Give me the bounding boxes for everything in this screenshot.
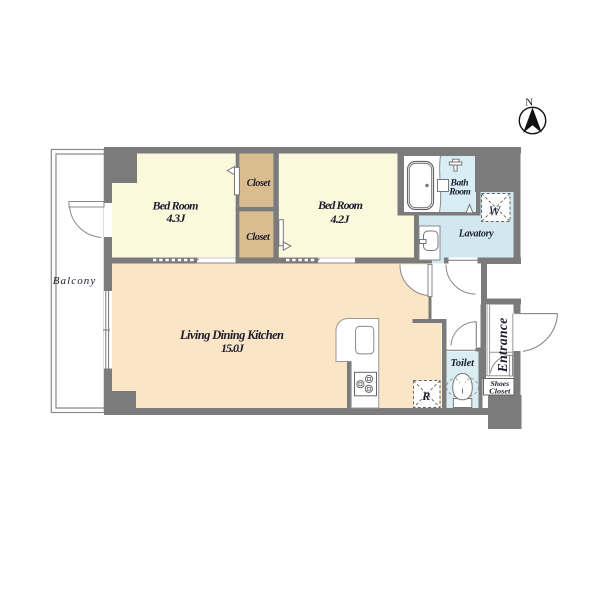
- svg-text:Closet: Closet: [247, 178, 272, 189]
- svg-text:R: R: [421, 389, 430, 403]
- svg-text:W: W: [489, 204, 502, 219]
- svg-text:Closet: Closet: [246, 232, 271, 243]
- svg-text:Room: Room: [448, 188, 471, 198]
- svg-text:4.3J: 4.3J: [166, 211, 187, 225]
- svg-text:Living Dining Kitchen: Living Dining Kitchen: [179, 328, 284, 342]
- svg-text:Lavatory: Lavatory: [458, 229, 495, 240]
- svg-text:Balcony: Balcony: [53, 275, 96, 287]
- svg-text:15.0J: 15.0J: [221, 341, 245, 355]
- svg-text:Closet: Closet: [489, 386, 511, 395]
- svg-text:Entrance: Entrance: [495, 318, 510, 374]
- svg-text:Toilet: Toilet: [451, 358, 476, 369]
- svg-text:Bed Room: Bed Room: [317, 198, 363, 212]
- svg-text:4.2J: 4.2J: [330, 212, 351, 226]
